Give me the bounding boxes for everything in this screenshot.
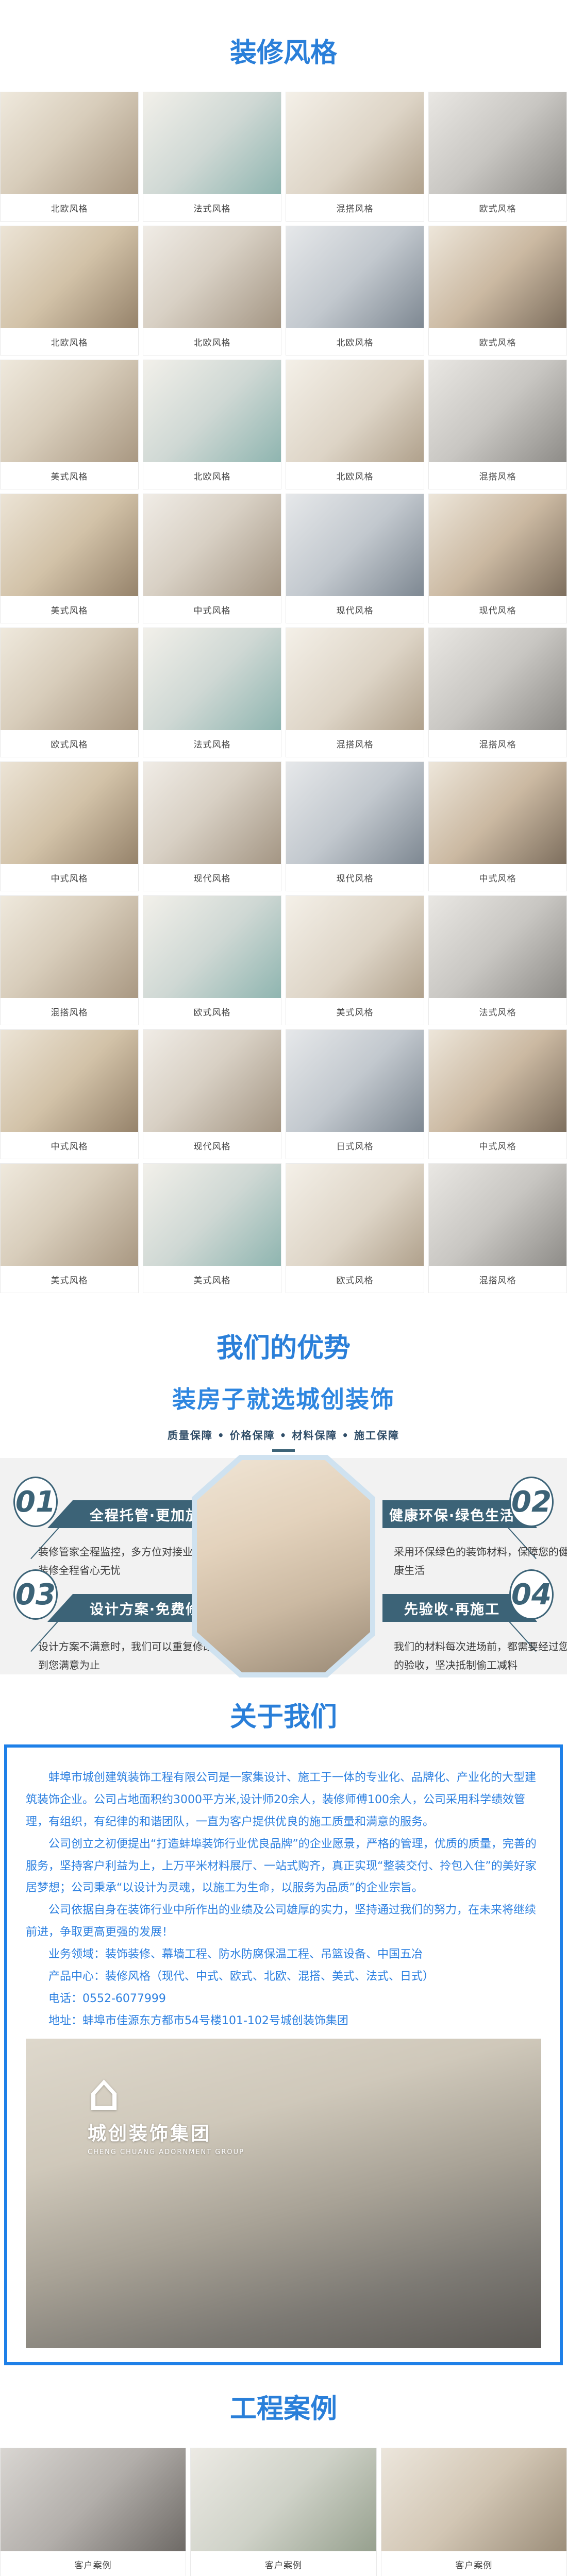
style-label: 北欧风格 bbox=[1, 194, 138, 221]
about-business-scope: 业务领域：装饰装修、幕墙工程、防水防腐保温工程、吊篮设备、中国五冶 bbox=[26, 1944, 541, 1966]
about-paragraph: 蚌埠市城创建筑装饰工程有限公司是一家集设计、施工于一体的专业化、品牌化、产业化的… bbox=[26, 1767, 541, 1834]
style-label: 法式风格 bbox=[143, 730, 281, 757]
style-photo bbox=[143, 360, 281, 462]
style-card[interactable]: 北欧风格 bbox=[286, 226, 424, 355]
style-card[interactable]: 美式风格 bbox=[0, 360, 139, 489]
style-label: 美式风格 bbox=[1, 462, 138, 489]
case-photo bbox=[191, 2448, 376, 2551]
style-label: 中式风格 bbox=[1, 864, 138, 891]
advantage-desc: 我们的材料每次进场前，都需要经过您的验收，坚决抵制偷工减料 bbox=[394, 1637, 567, 1674]
style-photo bbox=[1, 1030, 138, 1132]
style-photo bbox=[429, 896, 566, 998]
section-about: 关于我们 蚌埠市城创建筑装饰工程有限公司是一家集设计、施工于一体的专业化、品牌化… bbox=[0, 1699, 567, 2365]
case-card[interactable]: 客户案例 bbox=[381, 2448, 567, 2576]
style-card[interactable]: 欧式风格 bbox=[0, 628, 139, 757]
style-label: 北欧风格 bbox=[1, 328, 138, 355]
style-label: 北欧风格 bbox=[143, 328, 281, 355]
style-card[interactable]: 现代风格 bbox=[143, 1029, 281, 1159]
style-label: 欧式风格 bbox=[143, 998, 281, 1025]
style-label: 混搭风格 bbox=[286, 194, 424, 221]
style-label: 美式风格 bbox=[286, 998, 424, 1025]
section-title-styles: 装修风格 bbox=[0, 35, 567, 71]
case-card[interactable]: 客户案例 bbox=[190, 2448, 376, 2576]
style-label: 混搭风格 bbox=[429, 1266, 566, 1293]
style-grid: 北欧风格 法式风格 混搭风格 欧式风格 北欧风格 北欧风格 北欧风格 欧式风格 … bbox=[0, 92, 567, 1293]
style-label: 美式风格 bbox=[143, 1266, 281, 1293]
style-card[interactable]: 中式风格 bbox=[0, 761, 139, 891]
style-photo bbox=[286, 360, 424, 462]
style-photo bbox=[143, 1030, 281, 1132]
style-card[interactable]: 北欧风格 bbox=[0, 226, 139, 355]
logo-name-en: CHENG CHUANG ADORNMENT GROUP bbox=[88, 2148, 244, 2156]
style-photo bbox=[429, 226, 566, 328]
style-photo bbox=[143, 92, 281, 194]
style-photo bbox=[429, 1164, 566, 1266]
about-paragraph: 公司依据自身在装饰行业中所作出的业绩及公司雄厚的实力，坚持通过我们的努力，在未来… bbox=[26, 1900, 541, 1944]
section-decoration-styles: 装修风格 北欧风格 法式风格 混搭风格 欧式风格 北欧风格 北欧风格 北欧风格 … bbox=[0, 0, 567, 1293]
style-card[interactable]: 法式风格 bbox=[143, 92, 281, 222]
style-photo bbox=[429, 494, 566, 596]
style-card[interactable]: 混搭风格 bbox=[286, 92, 424, 222]
about-product-center: 产品中心：装修风格（现代、中式、欧式、北欧、混搭、美式、法式、日式） bbox=[26, 1966, 541, 1988]
style-label: 现代风格 bbox=[429, 596, 566, 623]
style-label: 混搭风格 bbox=[1, 998, 138, 1025]
guarantees-text: 质量保障 • 价格保障 • 材料保障 • 施工保障 bbox=[0, 1427, 567, 1442]
style-photo bbox=[429, 360, 566, 462]
section-title-about: 关于我们 bbox=[0, 1699, 567, 1735]
section-advantages: 我们的优势 装房子就选城创装饰 质量保障 • 价格保障 • 材料保障 • 施工保… bbox=[0, 1330, 567, 1674]
style-label: 欧式风格 bbox=[429, 328, 566, 355]
case-grid: 客户案例 客户案例 客户案例 客户案例 客户案例 客户案例 bbox=[0, 2448, 567, 2576]
style-photo bbox=[286, 628, 424, 730]
style-photo bbox=[143, 628, 281, 730]
style-label: 北欧风格 bbox=[143, 462, 281, 489]
section-title-advantages: 我们的优势 bbox=[0, 1330, 567, 1366]
case-photo bbox=[381, 2448, 566, 2551]
style-label: 混搭风格 bbox=[429, 462, 566, 489]
style-photo bbox=[143, 896, 281, 998]
about-photo: ⌂ 城创装饰集团 CHENG CHUANG ADORNMENT GROUP bbox=[26, 2039, 541, 2348]
style-label: 欧式风格 bbox=[1, 730, 138, 757]
style-card[interactable]: 日式风格 bbox=[286, 1029, 424, 1159]
style-photo bbox=[1, 1164, 138, 1266]
style-card[interactable]: 欧式风格 bbox=[286, 1163, 424, 1293]
style-label: 法式风格 bbox=[429, 998, 566, 1025]
style-card[interactable]: 美式风格 bbox=[143, 1163, 281, 1293]
style-card[interactable]: 中式风格 bbox=[428, 761, 567, 891]
style-label: 日式风格 bbox=[286, 1132, 424, 1159]
style-card[interactable]: 欧式风格 bbox=[428, 226, 567, 355]
style-photo bbox=[286, 1030, 424, 1132]
style-card[interactable]: 中式风格 bbox=[143, 494, 281, 623]
style-card[interactable]: 法式风格 bbox=[143, 628, 281, 757]
style-card[interactable]: 现代风格 bbox=[143, 761, 281, 891]
style-card[interactable]: 中式风格 bbox=[0, 1029, 139, 1159]
style-photo bbox=[1, 494, 138, 596]
style-card[interactable]: 中式风格 bbox=[428, 1029, 567, 1159]
style-label: 混搭风格 bbox=[286, 730, 424, 757]
style-card[interactable]: 北欧风格 bbox=[286, 360, 424, 489]
style-label: 美式风格 bbox=[1, 596, 138, 623]
style-photo bbox=[143, 494, 281, 596]
style-card[interactable]: 混搭风格 bbox=[428, 360, 567, 489]
style-photo bbox=[286, 1164, 424, 1266]
logo-name-cn: 城创装饰集团 bbox=[88, 2119, 244, 2145]
style-label: 北欧风格 bbox=[286, 328, 424, 355]
style-photo bbox=[286, 762, 424, 864]
style-card[interactable]: 欧式风格 bbox=[143, 895, 281, 1025]
style-photo bbox=[429, 1030, 566, 1132]
style-card[interactable]: 混搭风格 bbox=[0, 895, 139, 1025]
about-box: 蚌埠市城创建筑装饰工程有限公司是一家集设计、施工于一体的专业化、品牌化、产业化的… bbox=[4, 1744, 563, 2365]
style-card[interactable]: 美式风格 bbox=[0, 1163, 139, 1293]
style-photo bbox=[1, 896, 138, 998]
style-card[interactable]: 美式风格 bbox=[0, 494, 139, 623]
style-card[interactable]: 现代风格 bbox=[428, 494, 567, 623]
about-address: 地址：蚌埠市佳源东方都市54号楼101-102号城创装饰集团 bbox=[26, 2010, 541, 2032]
style-label: 欧式风格 bbox=[429, 194, 566, 221]
company-logo: ⌂ 城创装饰集团 CHENG CHUANG ADORNMENT GROUP bbox=[88, 2067, 244, 2156]
advantage-number: 01 bbox=[13, 1477, 58, 1527]
style-label: 法式风格 bbox=[143, 194, 281, 221]
advantages-banner: 01 全程托管·更加放心 装修管家全程监控，多方位对接业主，让装修全程省心无忧 … bbox=[0, 1458, 567, 1674]
style-photo bbox=[286, 92, 424, 194]
style-card[interactable]: 欧式风格 bbox=[428, 92, 567, 222]
style-label: 现代风格 bbox=[143, 1132, 281, 1159]
style-label: 北欧风格 bbox=[286, 462, 424, 489]
style-card[interactable]: 美式风格 bbox=[286, 895, 424, 1025]
style-label: 欧式风格 bbox=[286, 1266, 424, 1293]
case-card[interactable]: 客户案例 bbox=[0, 2448, 186, 2576]
style-photo bbox=[1, 92, 138, 194]
style-label: 中式风格 bbox=[1, 1132, 138, 1159]
style-photo bbox=[429, 762, 566, 864]
advantages-headline: 装房子就选城创装饰 bbox=[0, 1381, 567, 1415]
style-photo bbox=[286, 494, 424, 596]
about-paragraph: 公司创立之初便提出“打造蚌埠装饰行业优良品牌”的企业愿景，严格的管理，优质的质量… bbox=[26, 1834, 541, 1900]
style-photo bbox=[286, 896, 424, 998]
style-label: 中式风格 bbox=[429, 1132, 566, 1159]
style-label: 现代风格 bbox=[143, 864, 281, 891]
showcase-octagon-frame bbox=[192, 1455, 375, 1677]
advantage-number: 03 bbox=[13, 1569, 58, 1620]
advantage-number: 02 bbox=[509, 1477, 554, 1527]
style-label: 中式风格 bbox=[143, 596, 281, 623]
style-photo bbox=[429, 92, 566, 194]
style-card[interactable]: 现代风格 bbox=[286, 494, 424, 623]
case-label: 客户案例 bbox=[1, 2551, 186, 2576]
logo-house-icon: ⌂ bbox=[88, 2067, 244, 2119]
style-label: 混搭风格 bbox=[429, 730, 566, 757]
showcase-photo bbox=[197, 1460, 370, 1672]
case-photo bbox=[1, 2448, 186, 2551]
style-card[interactable]: 混搭风格 bbox=[286, 628, 424, 757]
style-label: 中式风格 bbox=[429, 864, 566, 891]
style-photo bbox=[1, 226, 138, 328]
advantage-number: 04 bbox=[509, 1569, 554, 1620]
style-photo bbox=[1, 628, 138, 730]
style-card[interactable]: 北欧风格 bbox=[0, 92, 139, 222]
style-label: 美式风格 bbox=[1, 1266, 138, 1293]
style-card[interactable]: 混搭风格 bbox=[428, 628, 567, 757]
style-card[interactable]: 混搭风格 bbox=[428, 1163, 567, 1293]
style-label: 现代风格 bbox=[286, 596, 424, 623]
section-cases: 工程案例 客户案例 客户案例 客户案例 客户案例 客户案例 客户案例 bbox=[0, 2391, 567, 2576]
case-label: 客户案例 bbox=[381, 2551, 566, 2576]
style-photo bbox=[143, 226, 281, 328]
style-photo bbox=[1, 762, 138, 864]
style-card[interactable]: 北欧风格 bbox=[143, 226, 281, 355]
style-card[interactable]: 现代风格 bbox=[286, 761, 424, 891]
section-title-cases: 工程案例 bbox=[0, 2391, 567, 2427]
about-phone: 电话：0552-6077999 bbox=[26, 1988, 541, 2010]
style-photo bbox=[143, 1164, 281, 1266]
style-photo bbox=[429, 628, 566, 730]
divider-dash bbox=[272, 1449, 295, 1452]
case-label: 客户案例 bbox=[191, 2551, 376, 2576]
style-label: 现代风格 bbox=[286, 864, 424, 891]
style-photo bbox=[143, 762, 281, 864]
style-photo bbox=[286, 226, 424, 328]
style-card[interactable]: 北欧风格 bbox=[143, 360, 281, 489]
style-card[interactable]: 法式风格 bbox=[428, 895, 567, 1025]
style-photo bbox=[1, 360, 138, 462]
